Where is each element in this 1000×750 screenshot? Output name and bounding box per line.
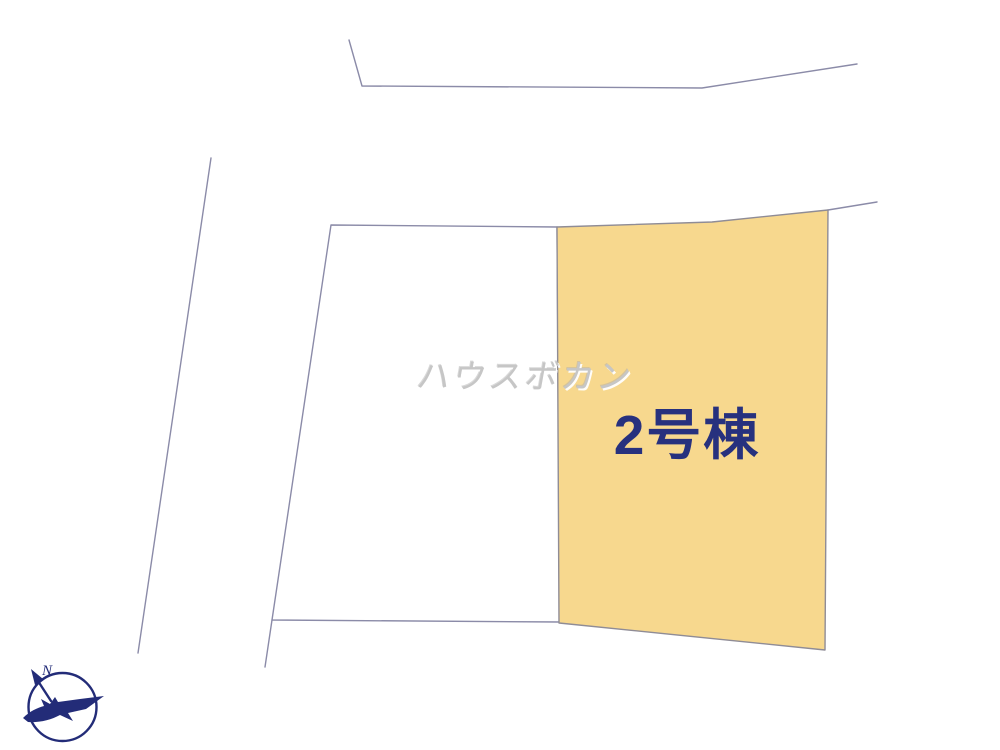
lot-1-left-edge-extension	[265, 620, 272, 667]
bird-silhouette-icon	[23, 696, 104, 722]
north-label: N	[41, 663, 53, 679]
lot-1-outline	[272, 225, 560, 622]
compass-north-icon: N	[18, 660, 110, 750]
lot-2-label: 2号棟	[597, 390, 777, 470]
road-boundary-top	[349, 40, 857, 88]
north-arrow-shaft	[38, 681, 51, 701]
plot-plan-canvas: ハウスボカン 2号棟 N	[0, 0, 1000, 750]
boundary-line-top-right	[828, 202, 877, 210]
boundary-line-far-left	[138, 158, 211, 653]
